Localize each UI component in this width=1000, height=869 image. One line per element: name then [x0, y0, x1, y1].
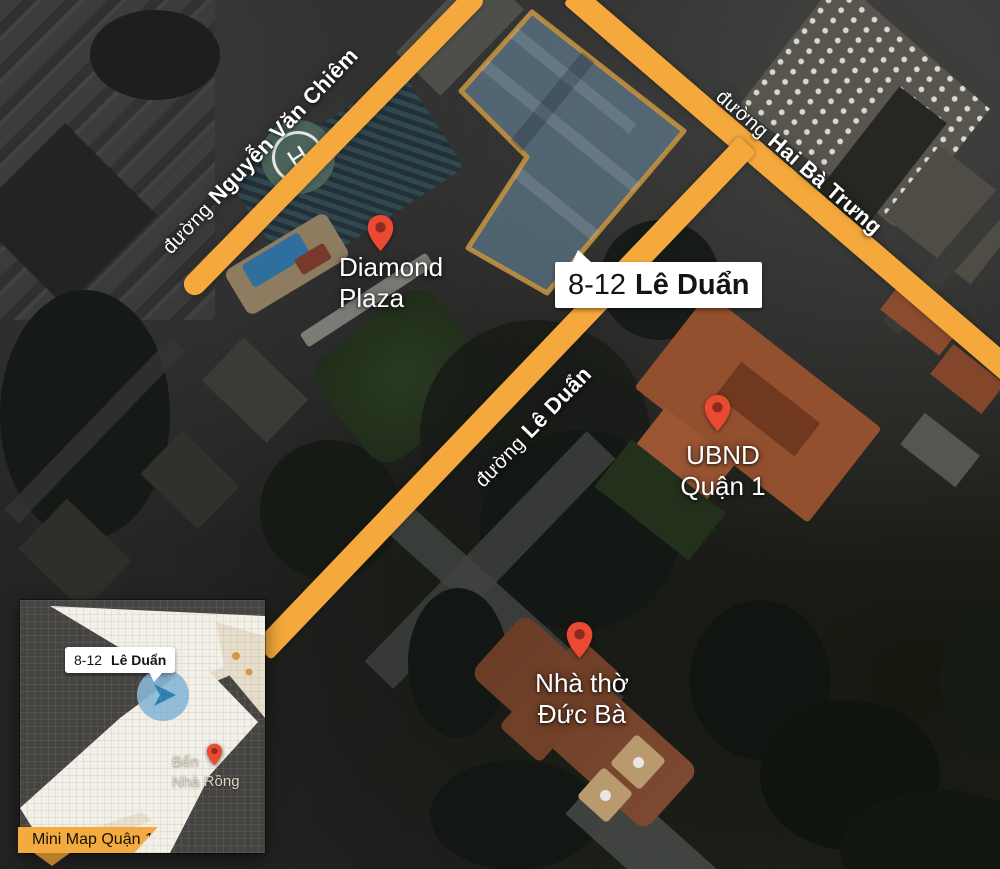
pin-ubnd-quan-1 — [703, 394, 732, 432]
callout-pointer — [572, 250, 592, 263]
site-name: Lê Duẩn — [635, 269, 749, 302]
minimap-callout: 8-12 Lê Duẩn — [65, 647, 175, 673]
pin-diamond-plaza — [366, 214, 395, 252]
map-pin-icon — [567, 622, 593, 658]
minimap-ribbon: Mini Map Quận 1 — [18, 827, 158, 853]
minimap-callout-pointer — [149, 672, 163, 682]
map-pin-icon — [705, 395, 731, 431]
minimap-shapes — [20, 600, 265, 853]
site-number: 8-12 — [568, 269, 626, 302]
minimap-pin-label: Bến Nhà Rồng — [172, 752, 240, 792]
pin-label-nha-tho-duc-ba: Nhà thờ Đức Bà — [535, 668, 629, 730]
pin-label-ubnd-quan-1: UBND Quận 1 — [680, 440, 765, 502]
pin-label-diamond-plaza: Diamond Plaza — [339, 252, 443, 314]
site-callout: 8-12 Lê Duẩn — [555, 262, 762, 308]
infographic-map: H — [0, 0, 1000, 869]
map-pin-icon — [368, 215, 394, 251]
pin-nha-tho-duc-ba — [565, 621, 594, 659]
minimap: 8-12 Lê Duẩn Bến Nhà Rồng Mini Map Quận … — [20, 600, 265, 853]
